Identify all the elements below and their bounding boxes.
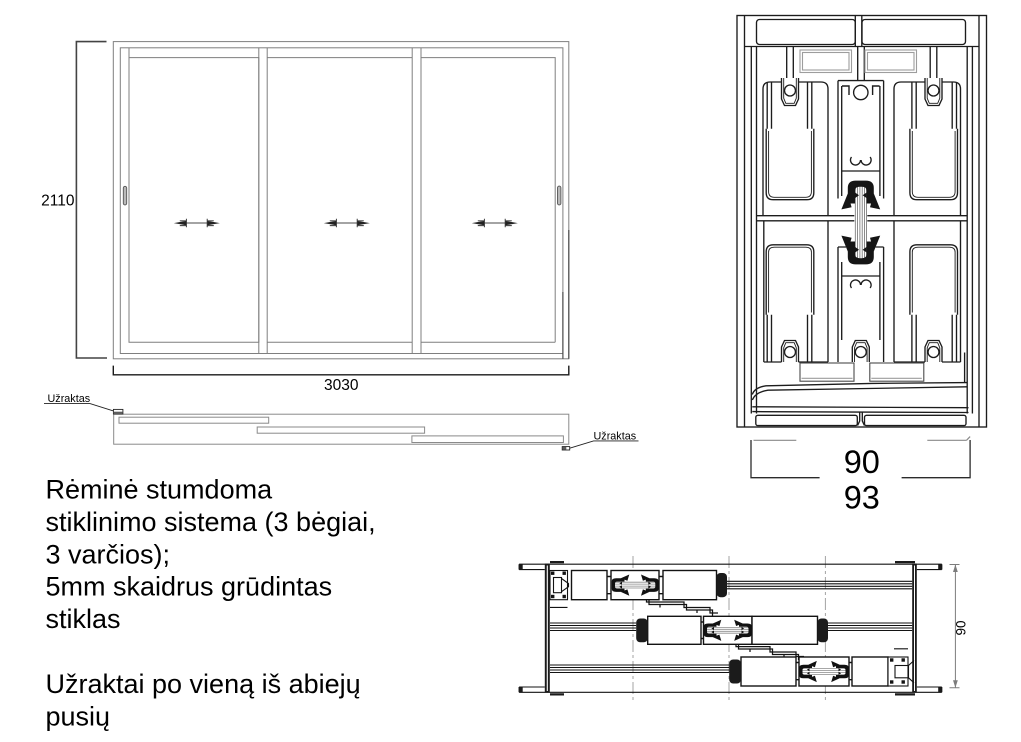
svg-text:3030: 3030 (324, 377, 359, 394)
svg-text:stiklinimo sistema (3 bėgiai,: stiklinimo sistema (3 bėgiai, (46, 507, 376, 537)
svg-text:93: 93 (844, 480, 880, 516)
svg-text:5mm skaidrus grūdintas: 5mm skaidrus grūdintas (46, 572, 333, 602)
svg-text:Užraktai po vieną iš abiejų: Užraktai po vieną iš abiejų (46, 669, 361, 699)
svg-text:3 varčios);: 3 varčios); (46, 539, 171, 569)
svg-text:Rėminė stumdoma: Rėminė stumdoma (46, 475, 274, 505)
svg-text:pusių: pusių (46, 701, 111, 731)
svg-text:90: 90 (953, 620, 968, 635)
svg-text:90: 90 (844, 444, 880, 480)
svg-text:stiklas: stiklas (46, 604, 121, 634)
svg-text:2110: 2110 (41, 193, 75, 210)
